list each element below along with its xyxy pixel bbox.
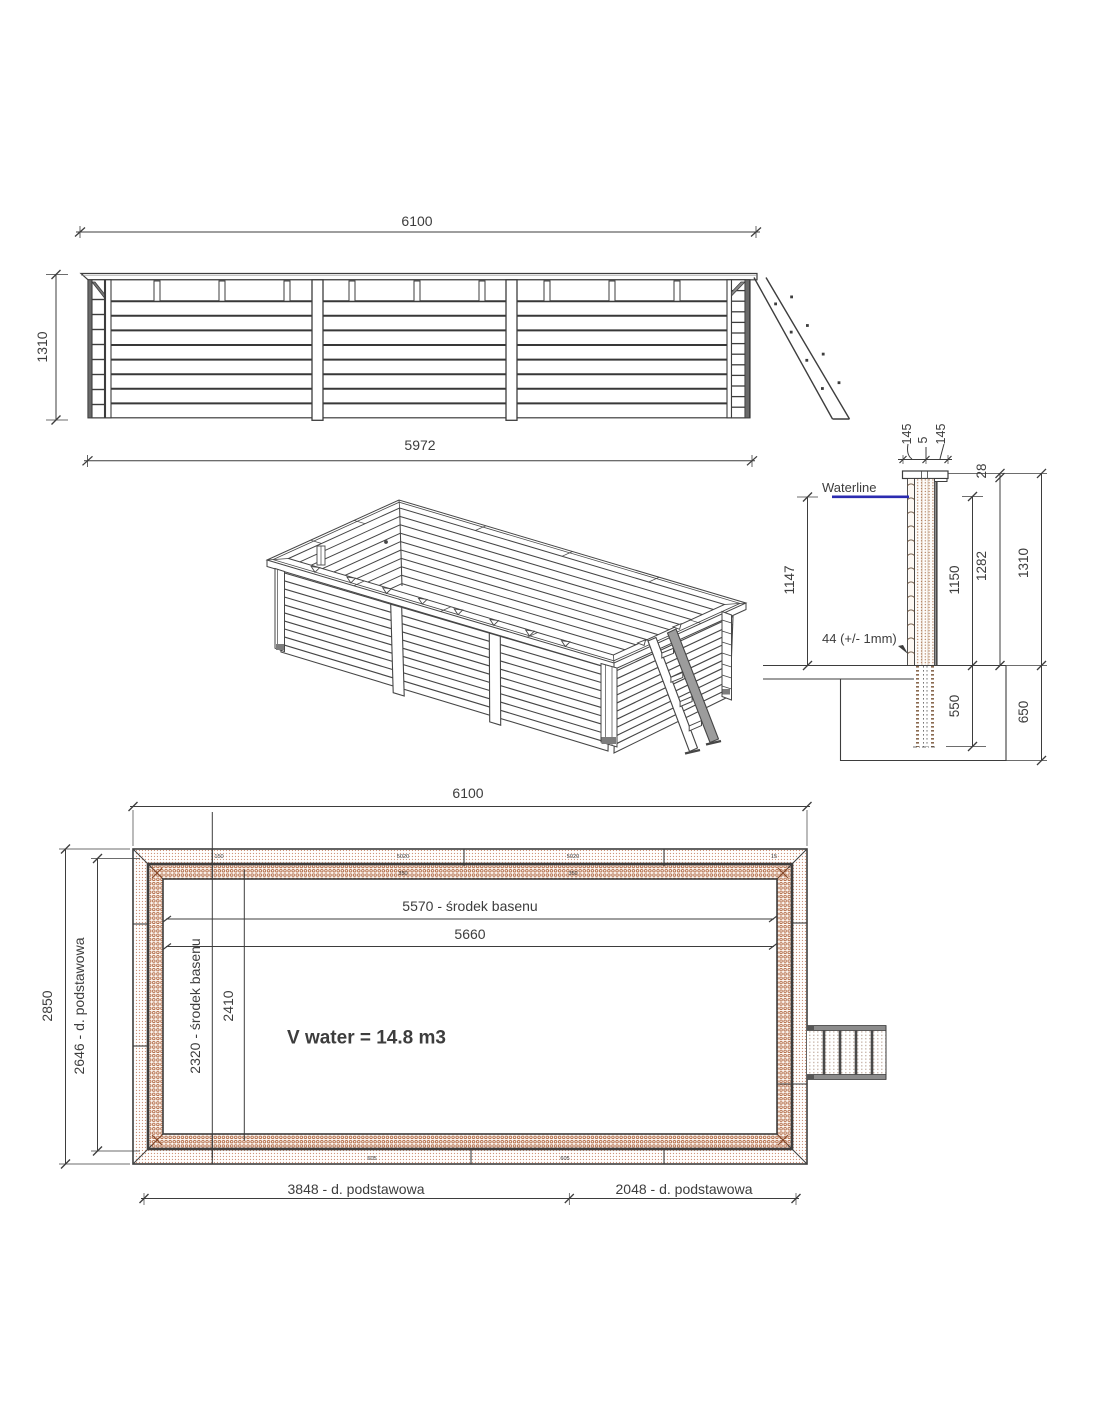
svg-text:605: 605: [560, 1156, 569, 1162]
svg-text:1150: 1150: [947, 565, 962, 594]
svg-text:550: 550: [947, 695, 962, 718]
svg-text:3848 - d. podstawowa: 3848 - d. podstawowa: [288, 1181, 425, 1197]
svg-text:650: 650: [1016, 701, 1031, 724]
svg-text:2410: 2410: [220, 990, 236, 1021]
svg-text:350: 350: [398, 871, 407, 877]
svg-text:Waterline: Waterline: [822, 480, 876, 495]
svg-text:6100: 6100: [401, 213, 432, 229]
svg-text:5660: 5660: [454, 926, 485, 942]
svg-text:2048 - d. podstawowa: 2048 - d. podstawowa: [616, 1181, 753, 1197]
svg-text:15: 15: [771, 854, 777, 860]
svg-text:2320 - środek basenu: 2320 - środek basenu: [187, 938, 203, 1073]
svg-text:145: 145: [900, 424, 914, 445]
svg-text:2850: 2850: [39, 990, 55, 1021]
svg-text:6100: 6100: [452, 785, 483, 801]
svg-text:150: 150: [214, 854, 223, 860]
svg-text:5972: 5972: [404, 437, 435, 453]
svg-text:5: 5: [916, 436, 930, 443]
svg-text:5020: 5020: [567, 854, 579, 860]
svg-text:1310: 1310: [1016, 548, 1031, 578]
svg-text:5570 - środek basenu: 5570 - środek basenu: [402, 898, 537, 914]
svg-text:350: 350: [568, 871, 577, 877]
svg-text:44 (+/- 1mm): 44 (+/- 1mm): [822, 631, 897, 646]
svg-text:605: 605: [367, 1156, 376, 1162]
svg-text:145: 145: [934, 424, 948, 445]
svg-text:V water = 14.8 m3: V water = 14.8 m3: [287, 1028, 446, 1049]
svg-text:1147: 1147: [782, 565, 797, 594]
svg-text:1282: 1282: [974, 551, 989, 581]
svg-text:28: 28: [974, 463, 989, 478]
svg-text:1310: 1310: [34, 331, 50, 362]
svg-text:5020: 5020: [397, 854, 409, 860]
svg-text:2646 - d. podstawowa: 2646 - d. podstawowa: [71, 937, 87, 1074]
